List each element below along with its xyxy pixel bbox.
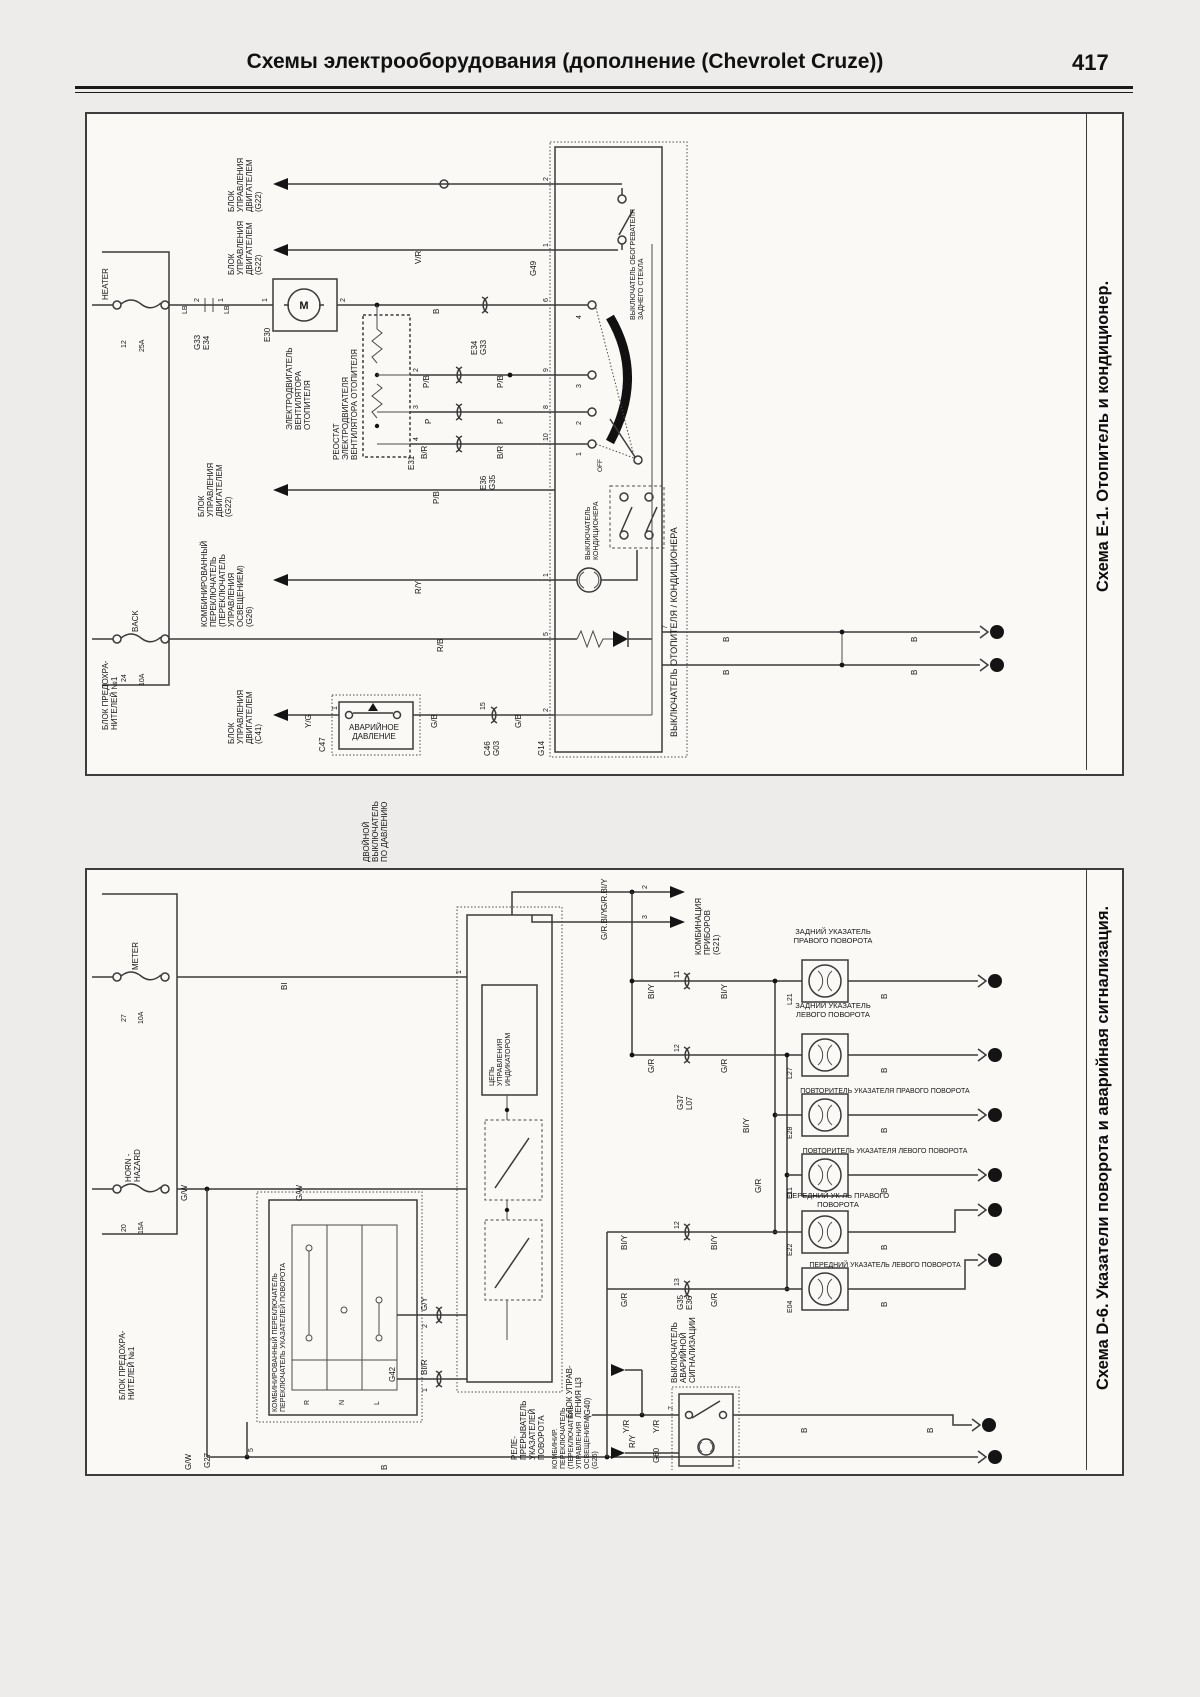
wire-label: G/W <box>184 1454 193 1470</box>
wire-label: R/Y <box>414 580 423 594</box>
wire-label: G/W <box>180 1185 189 1201</box>
wire-label: G/B <box>430 714 439 728</box>
schematic-e1-canvas: V/R B LB LB P/B P/B P P B/R B/R P/B R/Y … <box>87 114 1084 770</box>
ac-switch-label: ВЫКЛЮЧАТЕЛЬ КОНДИЦИОНЕРА <box>585 501 601 560</box>
fuse-heater-label: HEATER <box>101 268 110 300</box>
wire-label: P/B <box>496 375 505 388</box>
wire-label: G/B <box>514 714 523 728</box>
wire-label: B <box>880 1245 889 1250</box>
wire-label: G/R <box>647 1059 656 1073</box>
rear-defogger-switch-label: ВЫКЛЮЧАТЕЛЬ ОБОГРЕВАТЕЛЯ ЗАДНЕГО СТЕКЛА <box>630 209 646 320</box>
pin-label: 7 <box>668 1406 675 1410</box>
wire-label: G/R <box>754 1179 763 1193</box>
fuse-block-label-2: БЛОК ПРЕДОХРА- НИТЕЛЕЙ №1 <box>118 1331 136 1400</box>
wire-label: B <box>880 994 889 999</box>
wire-label: B/R <box>496 445 505 459</box>
wire-label: Y/G <box>304 714 313 728</box>
pin-label: 12 <box>674 1044 681 1052</box>
connector-g27: G27 <box>203 1453 212 1468</box>
pin-label: 2 <box>413 368 420 372</box>
pin-label: 10 <box>543 433 550 441</box>
page-title: Схемы электрооборудования (дополнение (C… <box>75 50 1055 74</box>
pin-label: 2 <box>642 885 649 889</box>
connector-e30: E30 <box>263 328 272 342</box>
connector-c47: C47 <box>318 737 327 752</box>
wire-label: B <box>722 637 731 642</box>
pin-label: 1 <box>576 452 583 456</box>
panel-e1-caption-divider <box>1086 114 1087 770</box>
wire-label: BI/Y <box>742 1117 751 1133</box>
off-label: OFF <box>597 459 605 472</box>
d6-wires-layer <box>92 886 1002 1470</box>
wire-label: G/R.BI/Y <box>600 908 609 940</box>
wire-label: R/Y <box>628 1434 637 1448</box>
lamp-label-front-right: ПЕРЕДНИЙ УК-ЛЬ ПРАВОГО ПОВОРОТА <box>763 1192 913 1209</box>
fuse-meter-number: 27 <box>121 1014 129 1022</box>
pin-label: 2 <box>194 298 201 302</box>
pin-label: 5 <box>248 1448 255 1452</box>
pin-label: 1 <box>456 970 463 974</box>
wire-label: G/W <box>295 1185 304 1201</box>
pin-label: 2 <box>576 421 583 425</box>
wire-label: B <box>910 670 919 675</box>
fuse-meter-label: METER <box>131 942 140 970</box>
pin-label: 5 <box>543 632 550 636</box>
pin-label: 15 <box>480 702 487 710</box>
wire-label: G/R <box>620 1293 629 1307</box>
pin-label: 3 <box>576 384 583 388</box>
wire-label: BI <box>280 982 289 990</box>
lamp-id-e22: E22 <box>787 1244 795 1256</box>
fuse-heater-number: 12 <box>121 340 129 348</box>
wire-label: B <box>880 1068 889 1073</box>
ecm-label-2: БЛОК УПРАВЛЕНИЯ ДВИГАТЕЛЕМ (G22) <box>227 221 263 275</box>
fuse-heater-amp: 25A <box>139 340 147 352</box>
pin-label: 11 <box>674 971 681 978</box>
connector-g37l07: G37 L07 <box>676 1095 694 1110</box>
position-n: N <box>339 1400 346 1405</box>
turn-switch-label: КОМБИНИРОВАННЫЙ ПЕРЕКЛЮЧАТЕЛЬ ПЕРЕКЛЮЧАТ… <box>272 1263 288 1412</box>
wire-label: LB <box>182 305 189 314</box>
connector-g42: G42 <box>388 1367 397 1382</box>
connector-g60: G60 <box>652 1448 661 1463</box>
combo-switch-label: КОМБИНИРОВАННЫЙ ПЕРЕКЛЮЧАТЕЛЬ (ПЕРЕКЛЮЧА… <box>200 541 254 627</box>
pin-label: 3 <box>413 405 420 409</box>
pin-label: 1 <box>332 706 339 710</box>
wire-label: B <box>800 1428 809 1433</box>
wire-label: P <box>424 419 433 424</box>
pin-label: 1 <box>543 243 550 247</box>
connector-g33e34: G33 E34 <box>193 335 211 350</box>
dual-pressure-switch-label: ДВОЙНОЙ ВЫКЛЮЧАТЕЛЬ ПО ДАВЛЕНИЮ <box>362 801 389 862</box>
pin-label: 4 <box>413 437 420 441</box>
wire-label: B <box>926 1428 935 1433</box>
connector-g49: G49 <box>529 261 538 276</box>
wire-label: B <box>910 637 919 642</box>
manual-page: Схемы электрооборудования (дополнение (C… <box>0 0 1200 1697</box>
hazard-switch-label: ВЫКЛЮЧАТЕЛЬ АВАРИЙНОЙ СИГНАЛИЗАЦИИ <box>670 1317 697 1383</box>
wire-label: B <box>722 670 731 675</box>
fuse-back-number: 24 <box>121 674 129 682</box>
fuse-horn-number: 20 <box>121 1224 129 1232</box>
wire-label: V/R <box>414 250 423 264</box>
position-r: R <box>304 1400 311 1405</box>
pin-label: 1 <box>262 298 269 302</box>
pin-label: 7 <box>662 625 669 629</box>
wire-label: P/B <box>422 375 431 388</box>
wire-label: B <box>380 1465 389 1470</box>
pin-label: 3 <box>642 915 649 919</box>
pin-label: 4 <box>576 315 583 319</box>
fuse-horn-hazard-label: HORN - HAZARD <box>124 1149 142 1182</box>
pin-label: 2 <box>422 1324 429 1328</box>
wire-label: G/R.BI/Y <box>600 878 609 910</box>
wire-label: P <box>496 419 505 424</box>
pin-label: 2 <box>543 708 550 712</box>
connector-g14: G14 <box>537 741 546 756</box>
ecm-c41-label: БЛОК УПРАВЛЕНИЯ ДВИГАТЕЛЕМ (C41) <box>227 690 263 744</box>
wire-label: Y/R <box>652 1419 661 1433</box>
wire-label: B/R <box>420 445 429 459</box>
lamp-label-rear-right: ЗАДНИЙ УКАЗАТЕЛЬ ПРАВОГО ПОВОРОТА <box>758 928 908 945</box>
pin-label: 1 <box>422 1388 429 1392</box>
wire-label: BI/R <box>420 1359 429 1375</box>
wire-label: G/R <box>720 1059 729 1073</box>
panel-d6-caption-divider <box>1086 870 1087 1470</box>
schema-e1-caption: Схема Е-1. Отопитель и кондиционер. <box>1094 281 1112 592</box>
lamp-label-repeater-left: ПОВТОРИТЕЛЬ УКАЗАТЕЛЯ ЛЕВОГО ПОВОРОТА <box>745 1148 1025 1157</box>
fuse-horn-amp: 15A <box>138 1222 146 1234</box>
pin-label: 13 <box>674 1278 681 1286</box>
wire-label: LB <box>224 305 231 314</box>
rheostat-label: РЕОСТАТ ЭЛЕКТРОДВИГАТЕЛЯ ВЕНТИЛЯТОРА ОТО… <box>332 349 359 460</box>
pin-label: 12 <box>674 1221 681 1229</box>
flasher-relay-label: РЕЛЕ- ПРЕРЫВАТЕЛЬ УКАЗАТЕЛЕЙ ПОВОРОТА <box>510 1401 546 1460</box>
connector-e36g35: E36 G35 <box>479 475 497 490</box>
connector-c46g03: C46 G03 <box>483 741 501 756</box>
wire-label: BI/Y <box>620 1234 629 1250</box>
wire-label: G/Y <box>420 1297 429 1311</box>
wire-label: Y/R <box>622 1419 631 1433</box>
pressure-switch-text: АВАРИЙНОЕ ДАВЛЕНИЕ <box>338 724 410 741</box>
position-l: L <box>374 1401 381 1405</box>
pin-label: 8 <box>543 405 550 409</box>
wire-label: G/R <box>710 1293 719 1307</box>
wire-label: P/B <box>432 491 441 504</box>
wire-label: R/B <box>436 639 445 652</box>
schema-d6-caption: Схема D-6. Указатели поворота и аварийна… <box>1094 906 1112 1390</box>
wire-label: B <box>432 309 441 314</box>
pin-label: 1 <box>218 298 225 302</box>
lamp-id-l27: L27 <box>787 1067 795 1079</box>
pin-label: 2 <box>340 298 347 302</box>
wire-label: BI/Y <box>720 983 729 999</box>
ecm-label-1: БЛОК УПРАВЛЕНИЯ ДВИГАТЕЛЕМ (G22) <box>227 158 263 212</box>
pin-label: 9 <box>543 368 550 372</box>
connector-g35e36: G35 E36 <box>676 1295 694 1310</box>
lamp-label-front-left: ПЕРЕДНИЙ УКАЗАТЕЛЬ ЛЕВОГО ПОВОРОТА <box>745 1262 1025 1271</box>
pin-label: 6 <box>543 298 550 302</box>
fuse-back-amp: 10A <box>139 674 147 686</box>
page-number: 417 <box>1072 50 1132 76</box>
header-rule <box>75 86 1133 93</box>
fuse-meter-amp: 10A <box>138 1012 146 1024</box>
lamp-id-e28: E28 <box>787 1127 795 1139</box>
pin-label: 2 <box>543 177 550 181</box>
wire-label: B <box>880 1128 889 1133</box>
fuse-back-label: BACK <box>131 610 140 632</box>
indicator-circuit-label: ЦЕПЬ УПРАВЛЕНИЯ ИНДИКАТОРОМ <box>489 1033 513 1086</box>
connector-e31: E31 <box>407 456 416 470</box>
lamp-label-rear-left: ЗАДНИЙ УКАЗАТЕЛЬ ЛЕВОГО ПОВОРОТА <box>758 1002 908 1019</box>
pin-label: 1 <box>543 573 550 577</box>
wire-label: B <box>880 1302 889 1307</box>
d6-wire-labels: BI G/W G/W G/W G/Y BI/R G/R.BI/Y G/R.BI/… <box>180 878 935 1470</box>
wire-label: BI/Y <box>647 983 656 999</box>
motor-symbol-letter: М <box>299 300 308 312</box>
lamp-label-repeater-right: ПОВТОРИТЕЛЬ УКАЗАТЕЛЯ ПРАВОГО ПОВОРОТА <box>745 1088 1025 1097</box>
wire-label: BI/Y <box>710 1234 719 1250</box>
blower-motor-label: ЭЛЕКТРОДВИГАТЕЛЬ ВЕНТИЛЯТОРА ОТОПИТЕЛЯ <box>285 347 312 430</box>
heater-panel-label: ВЫКЛЮЧАТЕЛЬ ОТОПИТЕЛЯ / КОНДИЦИОНЕРА <box>670 527 679 737</box>
combo-light-switch-label: КОМБИНИР. ПЕРЕКЛЮЧАТЕЛЬ (ПЕРЕКЛЮЧАТЕЛЬ У… <box>552 1405 600 1469</box>
ecm-label-3: БЛОК УПРАВЛЕНИЯ ДВИГАТЕЛЕМ (G22) <box>197 463 233 517</box>
connector-e34g33: E34 G33 <box>470 340 488 355</box>
lamp-id-e04: E04 <box>787 1301 795 1313</box>
fuse-block-label: БЛОК ПРЕДОХРА- НИТЕЛЕЙ №1 <box>101 661 119 730</box>
instrument-cluster-label: КОМБИНАЦИЯ ПРИБОРОВ (G21) <box>694 898 721 955</box>
